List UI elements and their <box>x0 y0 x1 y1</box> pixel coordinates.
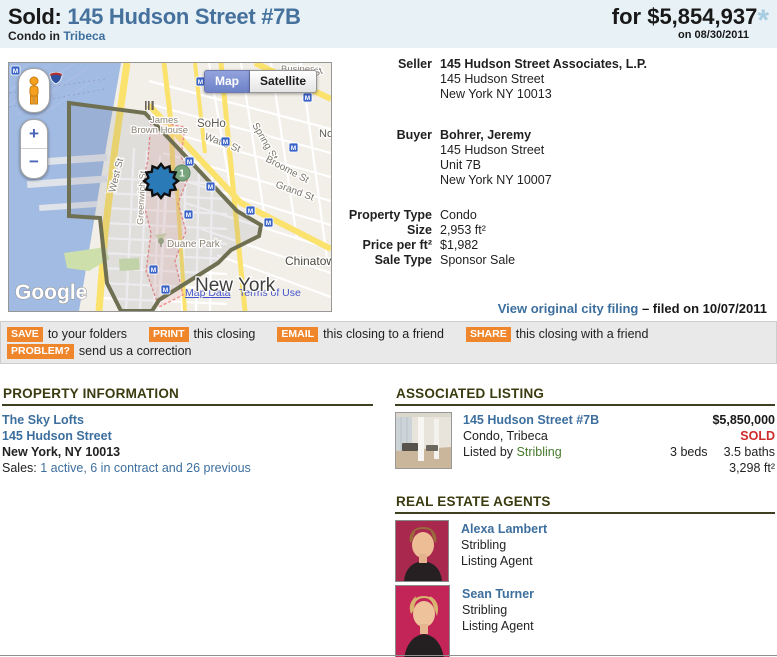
listing-price: $5,850,000 <box>670 412 775 428</box>
associated-listing-card: 145 Hudson Street #7B Condo, Tribeca Lis… <box>395 412 775 476</box>
subway-m-icon: M <box>291 145 296 152</box>
seller-label: Seller <box>340 57 432 102</box>
listing-broker-line: Listed by Stribling <box>463 444 670 460</box>
header: Sold: 145 Hudson Street #7B Condo in Tri… <box>0 0 777 48</box>
listing-address-link[interactable]: 145 Hudson Street #7B <box>463 412 670 428</box>
subway-m-icon: M <box>266 220 271 227</box>
print-caption: this closing <box>194 327 256 341</box>
svg-text:1: 1 <box>179 169 185 180</box>
sold-label: Sold: <box>8 4 62 29</box>
sale-price: for $5,854,937* <box>612 4 769 29</box>
property-information-section: PROPERTY INFORMATION The Sky Lofts 145 H… <box>2 386 373 476</box>
email-caption: this closing to a friend <box>323 327 444 341</box>
subway-m-icon: M <box>187 159 192 166</box>
property-information-heading: PROPERTY INFORMATION <box>2 386 373 406</box>
agent-info: Alexa Lambert Stribling Listing Agent <box>461 520 547 582</box>
share-caption: this closing with a friend <box>516 327 649 341</box>
right-column: ASSOCIATED LISTING 145 Hudson Street #7B <box>395 386 775 657</box>
detail-label: Property Type <box>340 208 432 223</box>
footer-divider <box>0 655 777 656</box>
map-label-chinatown: Chinatown <box>285 254 331 268</box>
listing-status-badge: SOLD <box>670 428 775 444</box>
detail-value: $1,982 <box>440 238 777 253</box>
listing-beds: 3 beds <box>670 445 708 459</box>
agent-row: Sean Turner Stribling Listing Agent <box>395 585 775 657</box>
associated-listing-heading: ASSOCIATED LISTING <box>395 386 775 406</box>
buyer-name: Bohrer, Jeremy <box>440 128 777 143</box>
map-label-duane-park: Duane Park <box>167 239 221 250</box>
broker-link[interactable]: Stribling <box>517 445 562 459</box>
save-caption: to your folders <box>48 327 127 341</box>
pegman-figure-icon <box>26 76 42 106</box>
save-button[interactable]: SAVE <box>7 327 43 342</box>
agent-company: Stribling <box>462 602 534 618</box>
detail-value: Sponsor Sale <box>440 253 777 268</box>
subway-m-icon: M <box>305 95 310 102</box>
buyer-address-line: New York NY 10007 <box>440 173 777 188</box>
action-toolbar: SAVEto your folders PRINTthis closing EM… <box>0 321 777 364</box>
listing-stats: $5,850,000 SOLD 3 beds3.5 baths 3,298 ft… <box>670 412 775 476</box>
map-zoom-control: + − <box>20 119 48 179</box>
address-link[interactable]: 145 Hudson Street #7B <box>67 4 300 29</box>
email-button[interactable]: EMAIL <box>277 327 318 342</box>
listing-size: 3,298 ft² <box>670 460 775 476</box>
header-right: for $5,854,937* on 08/30/2011 <box>612 4 769 48</box>
subway-m-icon: M <box>208 184 213 191</box>
detail-label: Size <box>340 223 432 238</box>
problem-button[interactable]: PROBLEM? <box>7 344 74 359</box>
price-prefix: for <box>612 4 641 29</box>
map-type-control: Map Satellite <box>204 70 317 93</box>
map-label-nolita: Nolita <box>319 128 331 140</box>
sales-link[interactable]: 1 active, 6 in contract and 26 previous <box>40 461 251 475</box>
buyer-address-line: Unit 7B <box>440 158 777 173</box>
filing-line: View original city filing – filed on 10/… <box>340 301 777 316</box>
agents-heading: REAL ESTATE AGENTS <box>395 494 775 514</box>
listed-by-label: Listed by <box>463 445 513 459</box>
buyer-label: Buyer <box>340 128 432 188</box>
footnote-asterisk-icon: * <box>757 4 769 37</box>
problem-caption: send us a correction <box>79 344 192 358</box>
property-type-label: Condo in <box>8 29 60 43</box>
agent-row: Alexa Lambert Stribling Listing Agent <box>395 520 775 582</box>
map-label-brown-house: Brown House <box>131 125 188 136</box>
map-widget[interactable]: Business SoHo James Brown House Watts St… <box>8 62 332 312</box>
sale-date: on 08/30/2011 <box>612 29 769 42</box>
listing-baths: 3.5 baths <box>724 445 775 459</box>
agent-name-link[interactable]: Sean Turner <box>462 586 534 602</box>
subway-m-icon: M <box>186 212 191 219</box>
zoom-out-button[interactable]: − <box>21 149 47 177</box>
buyer-address-line: 145 Hudson Street <box>440 143 777 158</box>
building-link[interactable]: The Sky Lofts <box>2 412 373 428</box>
building-address-link[interactable]: 145 Hudson Street <box>2 428 373 444</box>
header-left: Sold: 145 Hudson Street #7B Condo in Tri… <box>8 4 301 48</box>
map-type-map-button[interactable]: Map <box>204 70 250 93</box>
agent-role: Listing Agent <box>461 553 547 569</box>
transaction-details: Property TypeCondo Size2,953 ft² Price p… <box>340 208 777 268</box>
map-label-city: New York <box>195 275 276 296</box>
agent-role: Listing Agent <box>462 618 534 634</box>
agent-photo[interactable] <box>395 585 450 657</box>
share-button[interactable]: SHARE <box>466 327 511 342</box>
price-value: $5,854,937 <box>647 4 757 29</box>
map-canvas: Business SoHo James Brown House Watts St… <box>9 63 331 311</box>
subway-m-icon: M <box>151 267 156 274</box>
subway-m-icon: M <box>198 79 203 86</box>
print-button[interactable]: PRINT <box>149 327 189 342</box>
subway-m-icon: M <box>223 139 228 146</box>
interstate-shield-icon <box>49 71 63 84</box>
page-title: Sold: 145 Hudson Street #7B <box>8 4 301 29</box>
restaurant-icon <box>145 101 154 110</box>
google-logo[interactable]: Google <box>15 281 87 304</box>
agent-info: Sean Turner Stribling Listing Agent <box>462 585 534 657</box>
view-filing-link[interactable]: View original city filing <box>498 301 639 316</box>
agent-photo[interactable] <box>395 520 449 582</box>
agent-name-link[interactable]: Alexa Lambert <box>461 521 547 537</box>
listing-thumbnail[interactable] <box>395 412 452 469</box>
map-label-soho: SoHo <box>197 118 226 130</box>
page: Sold: 145 Hudson Street #7B Condo in Tri… <box>0 0 777 657</box>
agent-company: Stribling <box>461 537 547 553</box>
neighborhood-link[interactable]: Tribeca <box>63 29 105 43</box>
deed-details: Seller 145 Hudson Street Associates, L.P… <box>340 57 777 316</box>
detail-label: Price per ft² <box>340 238 432 253</box>
zoom-in-button[interactable]: + <box>21 120 47 149</box>
detail-value: Condo <box>440 208 777 223</box>
subway-m-icon: M <box>163 287 168 294</box>
street-view-pegman-icon[interactable] <box>18 68 50 113</box>
subway-m-icon: M <box>248 208 253 215</box>
detail-value: 2,953 ft² <box>440 223 777 238</box>
seller-address-line: New York NY 10013 <box>440 87 777 102</box>
sales-summary: Sales: 1 active, 6 in contract and 26 pr… <box>2 460 373 476</box>
buyer-block: Buyer Bohrer, Jeremy 145 Hudson Street U… <box>340 128 777 188</box>
seller-block: Seller 145 Hudson Street Associates, L.P… <box>340 57 777 102</box>
seller-name: 145 Hudson Street Associates, L.P. <box>440 57 777 72</box>
seller-address-line: 145 Hudson Street <box>440 72 777 87</box>
subtitle: Condo in Tribeca <box>8 29 301 43</box>
subway-m-icon: M <box>13 68 18 75</box>
sales-label: Sales: <box>2 461 37 475</box>
filing-date-note: – filed on 10/07/2011 <box>642 301 767 316</box>
building-city: New York, NY 10013 <box>2 444 373 460</box>
listing-type: Condo, Tribeca <box>463 428 670 444</box>
map-type-satellite-button[interactable]: Satellite <box>250 70 317 93</box>
listing-info: 145 Hudson Street #7B Condo, Tribeca Lis… <box>463 412 670 476</box>
detail-label: Sale Type <box>340 253 432 268</box>
